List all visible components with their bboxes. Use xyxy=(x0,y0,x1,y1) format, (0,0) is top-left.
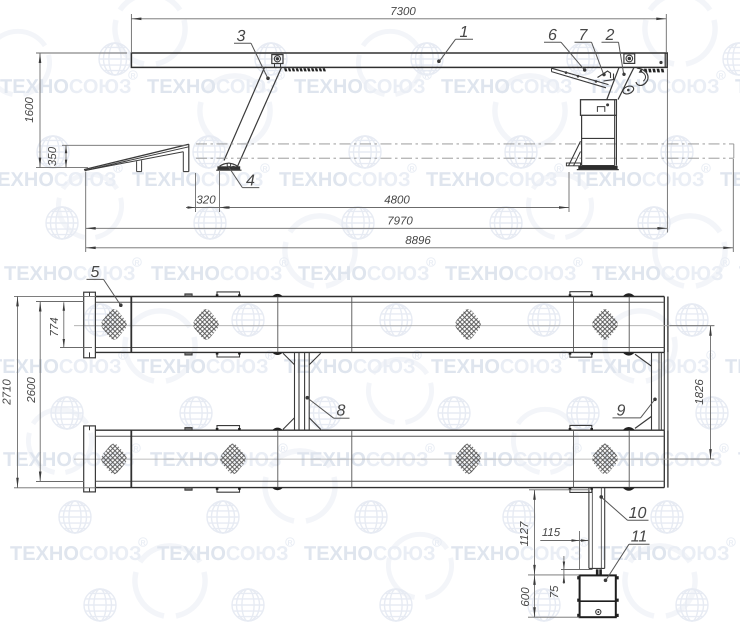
svg-text:9: 9 xyxy=(617,403,626,420)
svg-text:R: R xyxy=(703,166,708,173)
svg-text:R: R xyxy=(409,166,414,173)
svg-text:R: R xyxy=(561,353,566,360)
svg-text:R: R xyxy=(133,446,138,453)
svg-text:7970: 7970 xyxy=(387,216,413,228)
svg-text:75: 75 xyxy=(549,585,561,598)
svg-text:115: 115 xyxy=(542,527,561,539)
svg-text:R: R xyxy=(722,260,727,267)
svg-text:ТЕХНОСОЮЗ: ТЕХНОСОЮЗ xyxy=(588,76,720,98)
svg-text:R: R xyxy=(718,73,723,80)
svg-text:ТЕХНОСОЮЗ: ТЕХНОСОЮЗ xyxy=(157,543,289,565)
svg-text:10: 10 xyxy=(629,505,647,522)
svg-text:4: 4 xyxy=(246,173,255,190)
svg-text:ТЕХНОСОЮЗ: ТЕХНОСОЮЗ xyxy=(441,76,573,98)
svg-text:ТЕХНОСОЮЗ: ТЕХНОСОЮЗ xyxy=(137,356,269,378)
svg-text:R: R xyxy=(728,540,733,547)
svg-text:R: R xyxy=(434,540,439,547)
svg-text:ТЕХНОСОЮЗ: ТЕХНОСОЮЗ xyxy=(445,263,577,285)
svg-text:8896: 8896 xyxy=(405,235,431,247)
svg-text:ТЕХНОСОЮЗ: ТЕХНОСОЮЗ xyxy=(298,263,430,285)
svg-text:ТЕХНОСОЮЗ: ТЕХНОСОЮЗ xyxy=(735,76,740,98)
svg-text:R: R xyxy=(414,353,419,360)
svg-text:ТЕХНОСОЮЗ: ТЕХНОСОЮЗ xyxy=(10,543,142,565)
svg-text:4800: 4800 xyxy=(384,195,410,207)
svg-text:ТЕХНОСОЮЗ: ТЕХНОСОЮЗ xyxy=(279,169,411,191)
svg-text:R: R xyxy=(130,73,135,80)
svg-text:ТЕХНОСОЮЗ: ТЕХНОСОЮЗ xyxy=(294,76,426,98)
svg-text:7300: 7300 xyxy=(390,6,416,18)
svg-text:8: 8 xyxy=(337,403,346,420)
svg-text:R: R xyxy=(115,166,120,173)
svg-text:ТЕХНОСОЮЗ: ТЕХНОСОЮЗ xyxy=(578,356,710,378)
svg-text:R: R xyxy=(280,446,285,453)
svg-text:3: 3 xyxy=(237,28,246,45)
svg-text:R: R xyxy=(287,540,292,547)
svg-text:ТЕХНОСОЮЗ: ТЕХНОСОЮЗ xyxy=(573,169,705,191)
svg-text:1826: 1826 xyxy=(694,379,706,405)
svg-text:2710: 2710 xyxy=(2,379,14,406)
svg-text:ТЕХНОСОЮЗ: ТЕХНОСОЮЗ xyxy=(284,356,416,378)
svg-text:ТЕХНОСОЮЗ: ТЕХНОСОЮЗ xyxy=(431,356,563,378)
svg-text:ТЕХНОСОЮЗ: ТЕХНОСОЮЗ xyxy=(426,169,558,191)
svg-text:1600: 1600 xyxy=(24,97,36,123)
svg-text:R: R xyxy=(424,73,429,80)
svg-text:R: R xyxy=(428,260,433,267)
svg-text:ТЕХНОСОЮЗ: ТЕХНОСОЮЗ xyxy=(150,449,282,471)
svg-text:R: R xyxy=(574,446,579,453)
svg-text:R: R xyxy=(556,166,561,173)
svg-text:ТЕХНОСОЮЗ: ТЕХНОСОЮЗ xyxy=(4,263,136,285)
svg-text:ТЕХНОСОЮЗ: ТЕХНОСОЮЗ xyxy=(720,169,740,191)
svg-text:2: 2 xyxy=(605,27,615,44)
svg-text:R: R xyxy=(262,166,267,173)
svg-text:ТЕХНОСОЮЗ: ТЕХНОСОЮЗ xyxy=(151,263,283,285)
svg-text:1127: 1127 xyxy=(519,521,531,546)
svg-text:ТЕХНОСОЮЗ: ТЕХНОСОЮЗ xyxy=(0,169,117,191)
svg-text:ТЕХНОСОЮЗ: ТЕХНОСОЮЗ xyxy=(725,356,740,378)
svg-text:R: R xyxy=(281,260,286,267)
svg-text:ТЕХНОСОЮЗ: ТЕХНОСОЮЗ xyxy=(0,76,132,98)
svg-text:350: 350 xyxy=(47,146,59,166)
svg-text:7: 7 xyxy=(579,27,589,44)
svg-text:ТЕХНОСОЮЗ: ТЕХНОСОЮЗ xyxy=(592,263,724,285)
svg-text:R: R xyxy=(140,540,145,547)
svg-text:R: R xyxy=(120,353,125,360)
svg-text:11: 11 xyxy=(631,529,648,546)
svg-text:ТЕХНОСОЮЗ: ТЕХНОСОЮЗ xyxy=(297,449,429,471)
svg-text:R: R xyxy=(427,446,432,453)
svg-text:R: R xyxy=(575,260,580,267)
svg-text:R: R xyxy=(708,353,713,360)
svg-text:R: R xyxy=(267,353,272,360)
svg-text:1: 1 xyxy=(460,24,469,41)
svg-text:R: R xyxy=(134,260,139,267)
svg-text:ТЕХНОСОЮЗ: ТЕХНОСОЮЗ xyxy=(0,356,122,378)
svg-text:5: 5 xyxy=(91,264,100,281)
svg-text:2600: 2600 xyxy=(26,377,38,404)
svg-text:ТЕХНОСОЮЗ: ТЕХНОСОЮЗ xyxy=(304,543,436,565)
svg-text:6: 6 xyxy=(548,27,557,44)
svg-text:774: 774 xyxy=(49,317,61,336)
svg-text:R: R xyxy=(721,446,726,453)
svg-text:600: 600 xyxy=(520,587,532,607)
svg-text:320: 320 xyxy=(196,195,216,207)
